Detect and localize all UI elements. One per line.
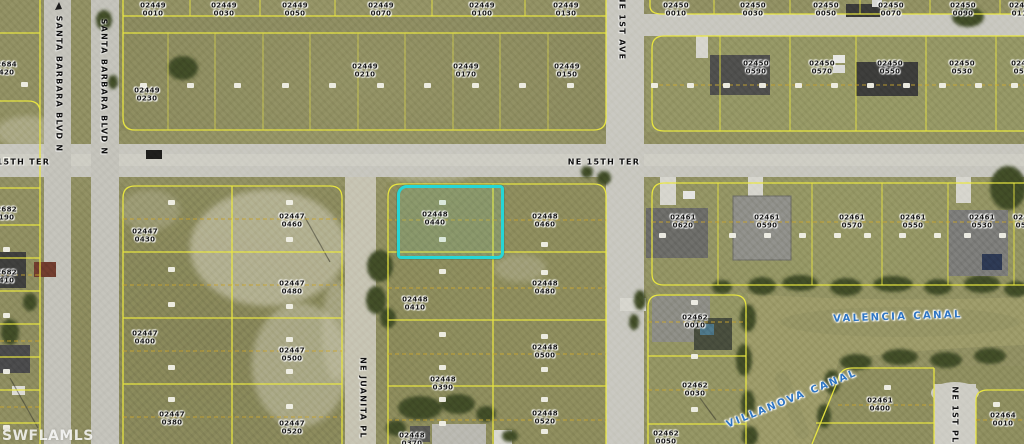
mls-watermark: SWFLAMLS	[2, 428, 94, 444]
highlighted-parcel[interactable]	[397, 185, 504, 259]
aerial-map[interactable]: 0244900100244900300244900500244900700244…	[0, 0, 1024, 444]
map-graphics	[0, 0, 1024, 444]
